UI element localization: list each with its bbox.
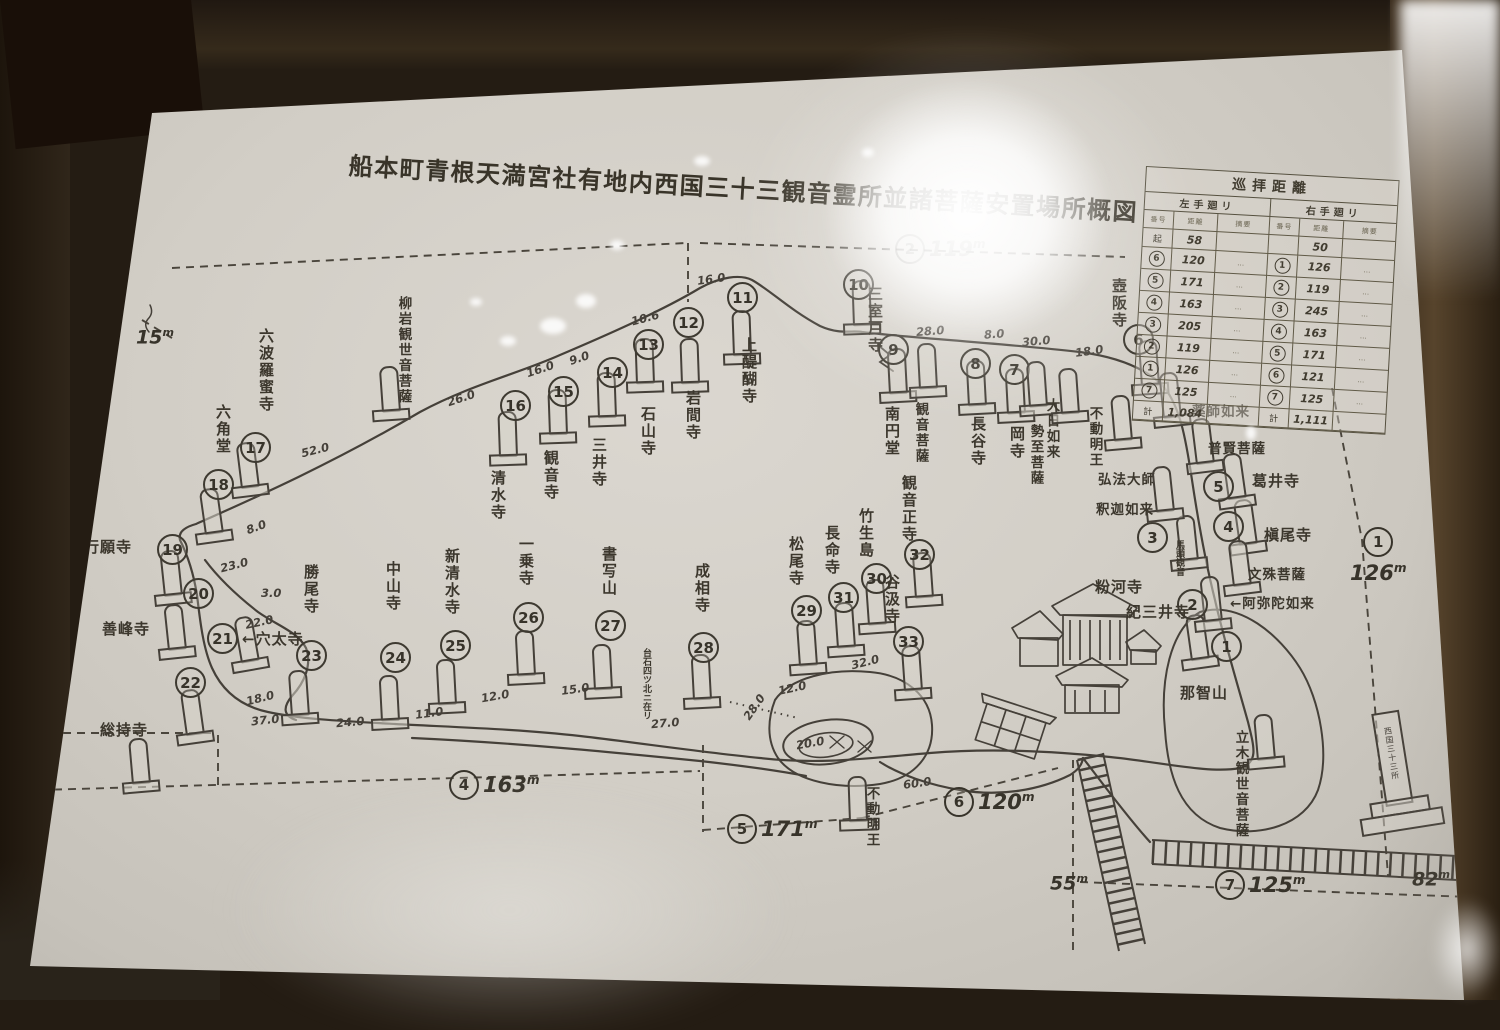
path-distance: 26.0	[446, 387, 477, 409]
station-6-stone	[1138, 339, 1160, 386]
map-drawing: 西国三十三所	[0, 0, 1500, 1000]
glass-glint	[862, 148, 874, 157]
station-15-label: 観音寺	[543, 450, 558, 501]
path-distance: 9.0	[567, 348, 591, 368]
station-24-label: 中山寺	[385, 561, 400, 612]
table-cell: 2	[1136, 335, 1167, 359]
station-28-stone	[691, 654, 712, 701]
station-22-number: 22	[175, 667, 206, 698]
survey-marker-value: 125m	[1249, 873, 1306, 897]
table-title: 巡拝距離	[1146, 167, 1399, 206]
figure-label: 立木観世音菩薩	[1233, 730, 1247, 839]
path-distance: 11.0	[414, 704, 444, 722]
road-band	[1152, 840, 1496, 882]
table-cell	[1207, 405, 1260, 427]
station-11-label: 上醍醐寺	[741, 337, 756, 405]
station-2-stone	[1199, 575, 1223, 623]
extra-stone	[128, 737, 151, 784]
survey-distance: 55m	[1050, 872, 1088, 894]
distance-table: 巡拝距離左手廻リ右手廻リ番号距離摘要番号距離摘要起58506120…1126…5…	[1132, 166, 1400, 435]
station-8-number: 8	[960, 348, 991, 379]
table-cell	[1333, 412, 1386, 434]
table-cell: 245	[1295, 300, 1340, 324]
path-distance: 16.0	[696, 270, 726, 288]
survey-marker-value: 126m	[1350, 561, 1407, 585]
path-distance: 15.0	[560, 680, 590, 698]
station-33-stone	[901, 644, 923, 691]
station-4-stone	[1233, 498, 1258, 546]
station-21-label: ←穴太寺	[242, 628, 304, 649]
station-27-label: 書写山	[601, 546, 616, 597]
figure-stone	[1110, 394, 1133, 441]
station-1-label: 那智山	[1180, 682, 1228, 703]
figure-stone	[379, 365, 401, 412]
survey-marker-circle: 6	[944, 787, 974, 817]
station-6-label: 壺阪寺	[1111, 278, 1126, 329]
station-22-label: 総持寺	[100, 719, 148, 740]
survey-marker-circle: 2	[895, 234, 925, 264]
station-28-label: 成相寺	[694, 563, 709, 614]
station-5-stone	[1222, 452, 1247, 500]
station-9-stone	[887, 348, 908, 395]
table-cell: 2	[1266, 276, 1297, 300]
station-18-stone	[199, 487, 224, 535]
station-10-label: 三室戸寺	[867, 286, 882, 354]
station-27-stone	[592, 644, 613, 691]
station-26-number: 26	[513, 602, 544, 633]
station-13-label: 石山寺	[640, 406, 655, 457]
glass-glint	[540, 318, 566, 334]
survey-marker-circle: 4	[449, 770, 479, 800]
table-cell: …	[1209, 361, 1262, 386]
station-14-stone	[596, 372, 617, 419]
survey-marker-2: 2119m	[895, 234, 986, 264]
glass-glint	[470, 298, 482, 306]
station-15-stone	[547, 389, 568, 436]
station-15-number: 15	[548, 376, 579, 407]
survey-marker-value: 171m	[761, 817, 818, 841]
glass-glint	[576, 294, 596, 308]
figure-label: 大日如来	[1044, 398, 1058, 460]
table-cell: 1	[1135, 357, 1166, 381]
path-distance: 37.0	[250, 712, 280, 729]
figure-label: 柳岩観世音菩薩	[396, 296, 410, 405]
table-cell: 120	[1171, 249, 1216, 273]
station-3-label: 粉河寺	[1095, 576, 1143, 597]
station-3-number: 3	[1137, 522, 1168, 553]
station-7-label: 岡寺	[1009, 426, 1024, 460]
station-17-stone	[235, 441, 259, 489]
survey-marker-value: 120m	[978, 790, 1035, 814]
table-cell: 171	[1170, 271, 1215, 295]
station-30-number: 30	[861, 563, 892, 594]
path-distance: 10.6	[630, 308, 661, 329]
station-30-stone	[865, 578, 887, 625]
glass-glint	[500, 336, 516, 346]
path-distance: 23.0	[219, 555, 250, 575]
station-23-number: 23	[296, 640, 327, 671]
station-29-number: 29	[791, 595, 822, 626]
table-cell	[1216, 232, 1269, 254]
photograph-of-pilgrimage-map: { "title": "船本町青根天満宮社有地内西国三十三観音霊所並諸菩薩安置場…	[0, 0, 1500, 1000]
station-26-label: 一乗寺	[518, 536, 533, 587]
station-3-note: 馬頭観音	[1174, 540, 1183, 576]
station-16-label: 清水寺	[490, 470, 505, 521]
survey-distance: 82m	[1412, 868, 1450, 890]
table-cell: …	[1334, 390, 1387, 415]
station-10-number: 10	[843, 269, 874, 300]
table-cell: 6	[1261, 364, 1292, 388]
path-distance: 8.0	[984, 326, 1005, 341]
table-grid: 番号距離摘要番号距離摘要起58506120…1126…5171…2119…416…	[1133, 210, 1396, 434]
station-28-number: 28	[688, 632, 719, 663]
table-cell: 7	[1134, 379, 1165, 403]
station-5-number: 5	[1203, 471, 1234, 502]
table-cell: 7	[1260, 386, 1291, 410]
table-cell: 119	[1296, 278, 1341, 302]
survey-marker-4: 4163m	[449, 770, 540, 800]
map-paper: 西国三十三所 船本町青根天満宮社有地内西国三十三観音霊所並諸菩薩安置場所概図 1…	[0, 0, 1500, 1000]
monument	[1345, 707, 1444, 836]
table-cell: 5	[1140, 269, 1171, 293]
table-cell: …	[1335, 368, 1388, 393]
table-cell: 1	[1267, 254, 1298, 278]
photo-frame: 西国三十三所 船本町青根天満宮社有地内西国三十三観音霊所並諸菩薩安置場所概図 1…	[0, 0, 1500, 1000]
glass-glint	[1246, 426, 1256, 440]
path-distance: 8.0	[244, 517, 268, 537]
figure-stone	[847, 776, 868, 823]
table-cell: …	[1341, 258, 1394, 283]
station-31-stone	[834, 601, 856, 648]
station-21-stone	[233, 615, 260, 664]
station-10-stone	[851, 280, 872, 327]
station-2-label: 紀三井寺	[1126, 601, 1190, 622]
station-11-stone	[731, 310, 752, 357]
station-22-stone	[180, 688, 205, 736]
figure-stone	[1190, 417, 1214, 465]
table-cell: 121	[1291, 365, 1336, 389]
table-cell: …	[1336, 346, 1389, 371]
station-12-number: 12	[673, 307, 704, 338]
path-distance: 3.0	[261, 586, 281, 600]
table-cell: 6	[1141, 247, 1172, 271]
path-distance: 16.0	[525, 358, 556, 380]
figure-label: 普賢菩薩	[1208, 437, 1266, 457]
station-8-label: 長谷寺	[970, 416, 985, 467]
station-20-stone	[163, 603, 187, 651]
table-cell: 4	[1139, 291, 1170, 315]
table-cell: 番号	[1269, 217, 1300, 237]
station-9-number: 9	[878, 334, 909, 365]
station-24-stone	[379, 675, 400, 722]
figure-label: 観音菩薩	[913, 402, 927, 464]
figure-label: 弘法大師	[1098, 468, 1156, 488]
station-30-label: 竹生島	[858, 508, 873, 559]
table-cell: 126	[1297, 256, 1342, 280]
station-6-number: 6	[1123, 324, 1154, 355]
station-23-label: 勝尾寺	[303, 564, 318, 615]
station-17-label: 六波羅蜜寺	[258, 328, 273, 413]
table-cell: …	[1214, 273, 1267, 298]
station-5-label: 葛井寺	[1252, 470, 1300, 491]
station-32-label: 観音正寺	[901, 475, 916, 543]
station-7-number: 7	[999, 354, 1030, 385]
station-18-label: 六角堂	[215, 404, 230, 455]
station-31-number: 31	[828, 582, 859, 613]
path-distance: 12.0	[480, 687, 510, 706]
station-25-number: 25	[440, 630, 471, 661]
station-16-number: 16	[500, 390, 531, 421]
survey-marker-1: 1126m	[1350, 527, 1407, 585]
table-cell: 1,084	[1163, 402, 1208, 423]
path-distance: 60.0	[902, 774, 932, 792]
station-23-stone	[288, 669, 310, 716]
figure-label: 勢至菩薩	[1028, 424, 1042, 486]
path-distance: 22.0	[244, 612, 275, 632]
table-cell: 番号	[1144, 210, 1175, 230]
table-cell: …	[1208, 383, 1261, 408]
figure-stone	[1151, 465, 1175, 513]
figure-label: ←阿弥陀如来	[1230, 592, 1315, 612]
station-4-number: 4	[1213, 511, 1244, 542]
survey-marker-value: 163m	[483, 773, 540, 797]
table-cell: …	[1213, 295, 1266, 320]
figure-label: 不動明王	[864, 786, 878, 848]
figure-stone	[1026, 360, 1048, 407]
station-4-label: 槇尾寺	[1264, 524, 1312, 545]
station-29-stone	[796, 619, 818, 666]
table-cell: 163	[1169, 293, 1214, 317]
figure-stone	[1058, 367, 1080, 414]
table-cell: 1,111	[1289, 409, 1334, 430]
survey-marker-circle: 7	[1215, 870, 1245, 900]
table-cell: 58	[1172, 230, 1217, 251]
table-cell: 計	[1133, 401, 1164, 422]
table-cell: …	[1340, 280, 1393, 305]
station-31-label: 長命寺	[824, 525, 839, 576]
station-9-label: 南円堂	[884, 406, 899, 457]
station-19-label: 行願寺	[84, 536, 132, 557]
table-cell: 50	[1298, 237, 1343, 258]
station-14-label: 三井寺	[591, 437, 606, 488]
path-distance: 20.0	[795, 734, 825, 753]
table-cell: …	[1211, 317, 1264, 342]
station-18-number: 18	[203, 469, 234, 500]
table-group-right: 右手廻リ	[1270, 199, 1397, 223]
table-cell: 171	[1292, 344, 1337, 368]
path-distance: 28.0	[916, 323, 945, 339]
station-11-number: 11	[727, 282, 758, 313]
figure-label: 釈迦如来	[1096, 498, 1154, 518]
station-20-number: 20	[183, 578, 214, 609]
figure-label: 薬師如来	[1192, 400, 1250, 420]
table-group-headers: 左手廻リ右手廻リ	[1145, 192, 1398, 224]
table-cell: …	[1338, 302, 1391, 327]
table-cell	[1268, 235, 1299, 256]
figure-stone	[1158, 371, 1182, 419]
survey-marker-circle: 1	[1363, 527, 1393, 557]
station-26-stone	[515, 630, 536, 677]
path-distance: 30.0	[1021, 333, 1050, 349]
station-12-label: 岩間寺	[685, 390, 700, 441]
station-19-number: 19	[157, 534, 188, 565]
glass-glint	[694, 156, 710, 166]
table-cell: 摘要	[1217, 214, 1270, 235]
table-cell: 起	[1142, 228, 1173, 249]
stairs-path	[1077, 753, 1145, 951]
path-distance: 52.0	[300, 440, 331, 460]
station-12-stone	[679, 338, 700, 385]
station-27-number: 27	[595, 610, 626, 641]
table-cell: 3	[1265, 298, 1296, 322]
station-27-note: 台石四ツ北ニ在リ	[641, 648, 650, 720]
path-distance: 18.0	[245, 688, 276, 708]
figure-stone	[1253, 713, 1276, 760]
survey-distance: 15m	[136, 326, 174, 348]
table-cell: …	[1215, 251, 1268, 276]
station-1-number: 1	[1211, 631, 1242, 662]
station-8-stone	[966, 360, 987, 407]
station-25-label: 新清水寺	[444, 548, 459, 616]
shrine-buildings	[968, 584, 1161, 761]
station-24-number: 24	[380, 642, 411, 673]
station-25-stone	[436, 659, 457, 706]
station-29-label: 松尾寺	[788, 536, 803, 587]
station-33-number: 33	[893, 626, 924, 657]
station-3-stone	[1175, 514, 1199, 562]
path-distance: 27.0	[650, 715, 679, 731]
table-cell: 163	[1293, 322, 1338, 346]
table-cell: 距離	[1299, 219, 1344, 239]
survey-marker-5: 5171m	[727, 814, 818, 844]
survey-marker-circle: 5	[727, 814, 757, 844]
station-2-number: 2	[1177, 589, 1208, 620]
table-cell: 125	[1164, 380, 1209, 404]
station-13-number: 13	[633, 329, 664, 360]
station-32-number: 32	[904, 539, 935, 570]
station-21-number: 21	[207, 623, 238, 654]
table-cell: 126	[1165, 358, 1210, 382]
table-cell: 摘要	[1343, 221, 1396, 242]
table-cell: 119	[1166, 336, 1211, 360]
survey-marker-value: 119m	[929, 237, 986, 261]
station-13-stone	[634, 338, 655, 385]
station-33-label: 谷汲寺	[884, 574, 899, 625]
pilgrim-path	[180, 277, 1254, 770]
map-title: 船本町青根天満宮社有地内西国三十三観音霊所並諸菩薩安置場所概図	[348, 146, 1169, 230]
table-cell: 計	[1259, 408, 1290, 429]
station-19-stone	[159, 549, 183, 597]
table-cell: …	[1337, 324, 1390, 349]
glass-glint	[610, 240, 624, 250]
station-20-label: 善峰寺	[102, 618, 150, 639]
station-16-stone	[497, 411, 518, 458]
table-cell: 距離	[1173, 212, 1218, 232]
path-distance: 28.0	[740, 691, 768, 722]
table-cell: 4	[1263, 320, 1294, 344]
figure-label: 文殊菩薩	[1248, 563, 1306, 583]
figure-stone	[917, 343, 938, 390]
table-cell	[1342, 239, 1395, 261]
survey-marker-7: 7125m	[1215, 870, 1306, 900]
table-cell: 125	[1290, 387, 1335, 411]
path-distance: 18.0	[1074, 342, 1104, 360]
table-cell: 5	[1262, 342, 1293, 366]
survey-marker-6: 6120m	[944, 787, 1035, 817]
table-cell: 3	[1138, 313, 1169, 337]
station-1-stone	[1185, 613, 1210, 661]
station-7-stone	[1005, 368, 1026, 415]
station-32-stone	[912, 551, 934, 598]
table-group-left: 左手廻リ	[1145, 192, 1272, 216]
station-17-number: 17	[240, 432, 271, 463]
table-cell: …	[1210, 339, 1263, 364]
figure-stone	[1227, 539, 1251, 587]
station-14-number: 14	[597, 357, 628, 388]
table-cell: 205	[1168, 315, 1213, 339]
monument-inscription: 西国三十三所	[1383, 726, 1400, 781]
figure-label: 不動明王	[1087, 406, 1101, 468]
path-distance: 12.0	[777, 678, 808, 698]
path-distance: 32.0	[850, 652, 881, 672]
path-distance: 24.0	[335, 714, 364, 730]
